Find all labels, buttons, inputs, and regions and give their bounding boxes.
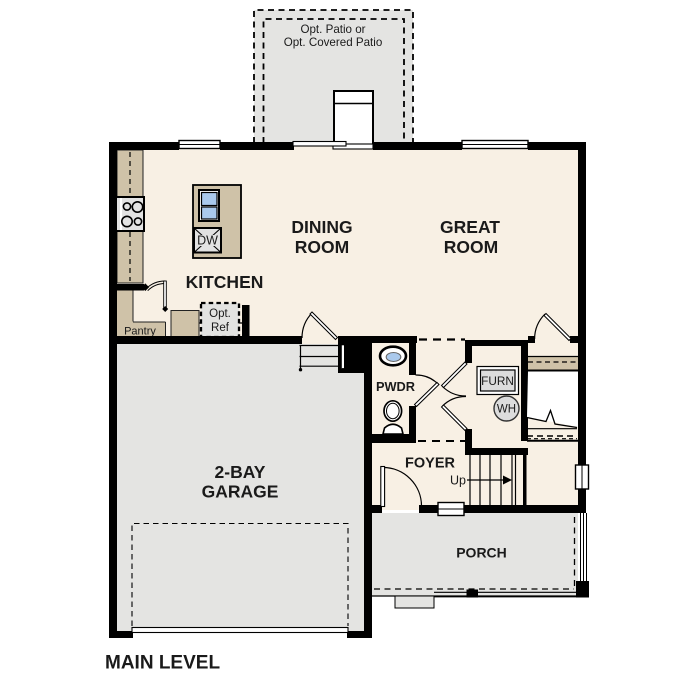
svg-text:2-BAY: 2-BAY	[215, 462, 266, 482]
svg-text:KITCHEN: KITCHEN	[186, 272, 264, 292]
svg-text:ROOM: ROOM	[444, 237, 498, 257]
svg-text:Opt.: Opt.	[209, 308, 231, 320]
svg-text:FOYER: FOYER	[405, 456, 455, 472]
svg-text:MAIN LEVEL: MAIN LEVEL	[105, 653, 220, 674]
svg-text:Pantry: Pantry	[124, 326, 156, 338]
svg-text:Opt. Patio or: Opt. Patio or	[300, 23, 365, 36]
svg-text:ROOM: ROOM	[295, 237, 349, 257]
svg-text:Up: Up	[450, 474, 466, 488]
svg-text:FURN: FURN	[481, 374, 514, 388]
svg-text:GARAGE: GARAGE	[202, 482, 279, 502]
svg-text:Ref: Ref	[211, 322, 230, 334]
svg-text:DW: DW	[197, 234, 218, 248]
svg-text:DINING: DINING	[291, 217, 352, 237]
svg-text:PWDR: PWDR	[376, 379, 415, 394]
svg-text:GREAT: GREAT	[440, 217, 500, 237]
svg-text:PORCH: PORCH	[456, 545, 507, 561]
svg-text:WH: WH	[497, 404, 516, 416]
svg-text:Opt. Covered Patio: Opt. Covered Patio	[284, 36, 383, 49]
